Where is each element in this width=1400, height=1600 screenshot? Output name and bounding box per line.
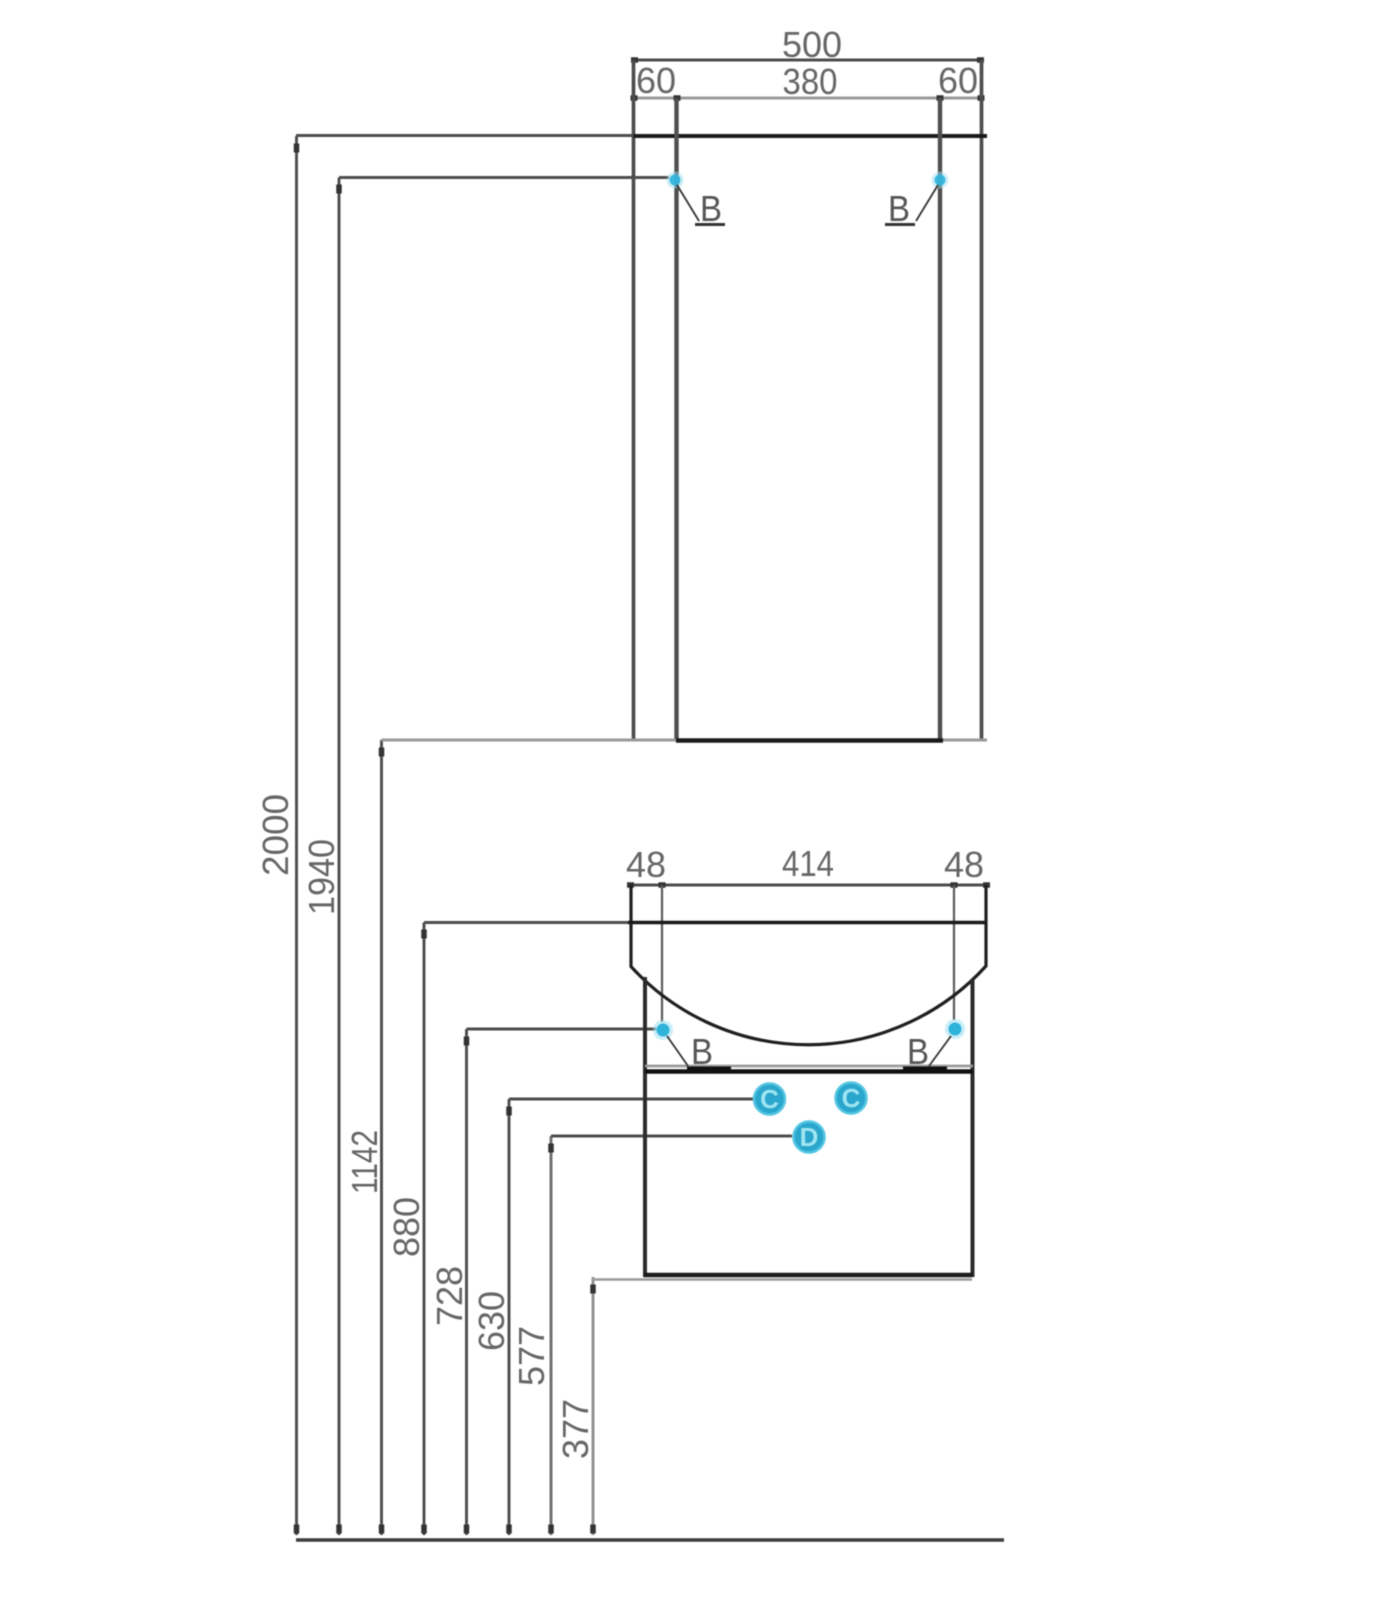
svg-text:48: 48 [944,844,984,885]
svg-text:1940: 1940 [301,839,342,915]
svg-text:577: 577 [511,1326,552,1386]
svg-text:B: B [907,1031,929,1072]
svg-text:B: B [888,188,910,229]
svg-text:C: C [760,1084,779,1114]
svg-text:2000: 2000 [255,794,296,876]
svg-text:380: 380 [783,61,838,102]
svg-text:880: 880 [386,1197,427,1257]
svg-text:500: 500 [782,24,842,65]
svg-text:377: 377 [555,1399,596,1459]
svg-text:414: 414 [782,843,834,884]
svg-text:60: 60 [636,60,676,101]
svg-text:60: 60 [938,60,978,101]
svg-text:B: B [700,188,722,229]
svg-text:C: C [842,1083,861,1113]
svg-text:1142: 1142 [344,1130,385,1194]
svg-text:48: 48 [626,844,666,885]
svg-text:630: 630 [471,1291,512,1351]
svg-text:728: 728 [429,1266,470,1326]
svg-text:B: B [691,1031,713,1072]
svg-text:D: D [800,1122,819,1152]
